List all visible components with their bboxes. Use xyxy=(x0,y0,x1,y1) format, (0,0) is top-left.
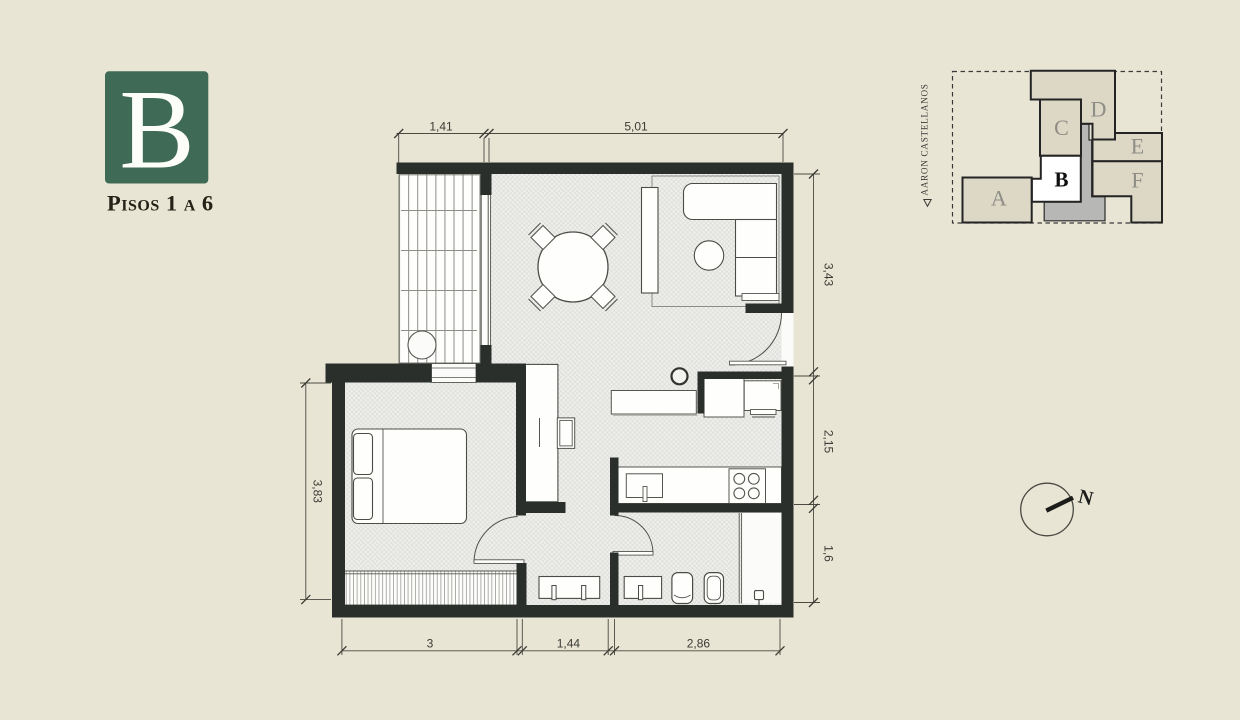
svg-text:C: C xyxy=(1054,115,1069,140)
svg-text:1,6: 1,6 xyxy=(822,545,836,562)
svg-text:3,83: 3,83 xyxy=(311,480,325,504)
svg-text:3,43: 3,43 xyxy=(822,263,836,287)
svg-text:F: F xyxy=(1131,168,1143,193)
svg-text:5,01: 5,01 xyxy=(624,120,648,134)
svg-text:A: A xyxy=(991,186,1007,211)
svg-text:1,44: 1,44 xyxy=(557,637,581,651)
svg-text:1,41: 1,41 xyxy=(429,120,453,134)
svg-text:B: B xyxy=(119,68,194,193)
svg-text:2,15: 2,15 xyxy=(822,430,836,454)
svg-text:Pisos 1 a 6: Pisos 1 a 6 xyxy=(107,191,214,216)
svg-text:B: B xyxy=(1054,168,1068,192)
svg-text:D: D xyxy=(1091,97,1107,122)
svg-text:3: 3 xyxy=(427,637,434,651)
svg-text:E: E xyxy=(1131,134,1144,159)
svg-text:2,86: 2,86 xyxy=(687,637,711,651)
svg-text:AARON CASTELLANOS: AARON CASTELLANOS xyxy=(920,83,930,195)
